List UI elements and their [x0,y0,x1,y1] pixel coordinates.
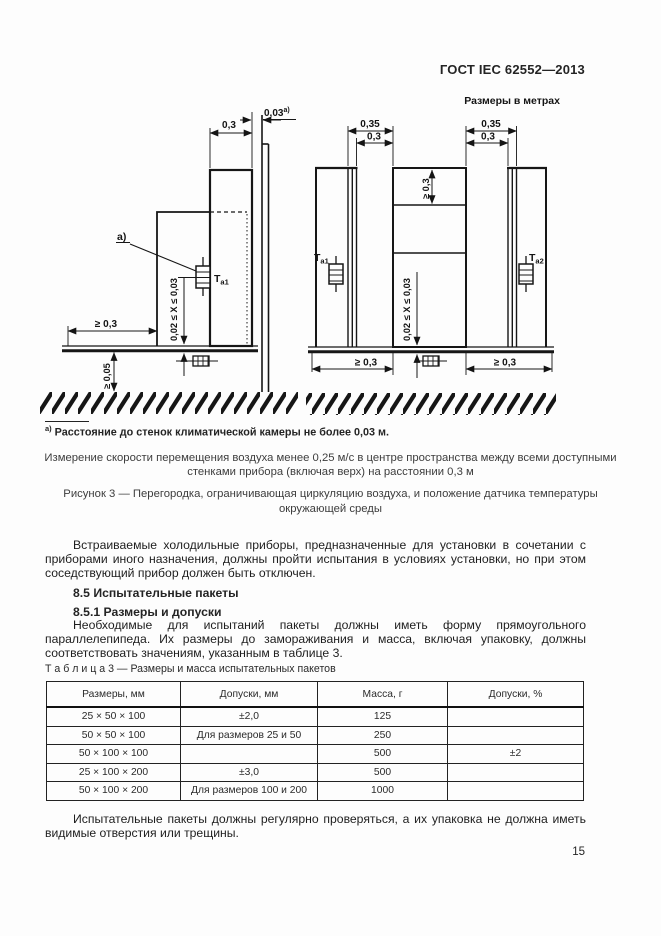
table-cell: 500 [318,745,448,764]
dim-035-left: 0,35 [360,119,380,130]
table-cell: ±2 [448,745,584,764]
dim-ge03-bottom-left: ≥ 0,3 [355,358,378,369]
table-cell: Для размеров 25 и 50 [181,726,318,745]
footnote-text: Расстояние до стенок климатической камер… [55,427,389,439]
heading-8-5-1: 8.5.1 Размеры и допуски [73,605,221,619]
page-number: 15 [572,846,585,858]
svg-text:0,02 ≤ X ≤ 0,03: 0,02 ≤ X ≤ 0,03 [402,278,412,341]
table-cell: ±2,0 [181,707,318,726]
table-cell: 500 [318,763,448,782]
paragraph-built-in-appliances: Встраиваемые холодильные приборы, предна… [45,539,586,581]
chamber-wall [262,115,269,392]
callout-a: а) [116,231,196,271]
figure-caption: Рисунок 3 — Перегородка, ограничивающая … [28,487,633,516]
table-header-mass: Масса, г [318,682,448,708]
table-cell: ±3,0 [181,763,318,782]
table-cell: 1000 [318,782,448,801]
table-cell [448,782,584,801]
table-3-label: Т а б л и ц а 3 — Размеры и масса испыта… [45,663,336,675]
dim-03-left: 0,3 [367,132,381,143]
figure-caption-line2: окружающей среды [28,502,633,517]
sensor-ta1-front: Та1 [314,252,343,292]
svg-text:≥ 0,05: ≥ 0,05 [102,363,112,389]
sensor-ta1-label: Та1 [214,273,229,287]
svg-text:≥ 0,3: ≥ 0,3 [421,178,431,199]
side-view-diagram: 0,3 0,03а) а) Та1 [40,107,298,414]
figure-caption-line1: Рисунок 3 — Перегородка, ограничивающая … [28,487,633,502]
partition [210,170,252,346]
sensor-ta2-front: Та2 [519,252,544,292]
dim-0-03-gap: 0,03а) [240,107,296,120]
dim-ge03-side: ≥ 0,3 [68,319,157,346]
dim-035-right: 0,35 [481,119,501,130]
dim-03-right: 0,3 [481,132,495,143]
table-row: 50 × 100 × 100 500 ±2 [47,745,584,764]
figure-note-line1: Измерение скорости перемещения воздуха м… [28,451,633,465]
dim-ge005-side: ≥ 0,05 [102,353,114,392]
figure-note: Измерение скорости перемещения воздуха м… [28,451,633,479]
dim-ge03-overhead: ≥ 0,3 [421,170,432,204]
table-cell: 125 [318,707,448,726]
dim-x-range-front: 0,02 ≤ X ≤ 0,03 [402,272,447,378]
table-header-row: Размеры, мм Допуски, мм Масса, г Допуски… [47,682,584,708]
paragraph-package-check: Испытательные пакеты должны регулярно пр… [45,813,586,841]
footnote-rule [45,421,89,422]
table-3: Размеры, мм Допуски, мм Масса, г Допуски… [46,681,584,801]
units-note: Размеры в метрах [464,95,560,107]
sensor-ta1-front-label: Та1 [314,252,329,266]
table-cell [181,745,318,764]
table-header-tolerances-pct: Допуски, % [448,682,584,708]
table-cell: 25 × 50 × 100 [47,707,181,726]
sensor-ta2-label: Та2 [529,252,544,266]
table-header-tolerances-mm: Допуски, мм [181,682,318,708]
heading-8-5: 8.5 Испытательные пакеты [73,586,239,600]
table-cell [448,726,584,745]
table-row: 25 × 50 × 100 ±2,0 125 [47,707,584,726]
top-dims: 0,35 0,3 0,35 0,3 [348,119,517,166]
table-row: 50 × 100 × 200 Для размеров 100 и 200 10… [47,782,584,801]
table-row: 25 × 100 × 200 ±3,0 500 [47,763,584,782]
front-view-diagram: ≥ 0,3 0,35 0,3 0,35 0,3 [306,119,556,415]
table-row: 50 × 50 × 100 Для размеров 25 и 50 250 [47,726,584,745]
table-cell: 25 × 100 × 200 [47,763,181,782]
table-cell: 250 [318,726,448,745]
footnote-marker: а) [45,424,52,433]
figure-3-diagram: Размеры в метрах 0, [0,0,661,420]
table-header-sizes: Размеры, мм [47,682,181,708]
paragraph-test-packages: Необходимые для испытаний пакеты должны … [45,619,586,661]
svg-text:≥ 0,3: ≥ 0,3 [95,319,118,330]
figure-footnote: а) Расстояние до стенок климатической ка… [45,421,475,439]
sensor-ta1-side: Та1 [178,257,229,296]
svg-text:а): а) [117,231,126,243]
document-page: ГОСТ IEC 62552—2013 Размеры в метрах [0,0,661,936]
table-cell: 50 × 50 × 100 [47,726,181,745]
table-cell: 50 × 100 × 100 [47,745,181,764]
table-cell: Для размеров 100 и 200 [181,782,318,801]
ground-hatch-right [306,393,556,415]
table-cell [448,763,584,782]
table-cell: 50 × 100 × 200 [47,782,181,801]
dim-ge03-bottom-right: ≥ 0,3 [494,358,517,369]
figure-note-line2: стенками прибора (включая верх) на расст… [28,465,633,479]
table-cell [448,707,584,726]
ground-hatch [40,392,298,414]
svg-text:0,03а): 0,03а) [264,107,290,119]
svg-text:0,02 ≤ X ≤ 0,03: 0,02 ≤ X ≤ 0,03 [169,278,179,341]
svg-text:0,3: 0,3 [222,120,236,131]
